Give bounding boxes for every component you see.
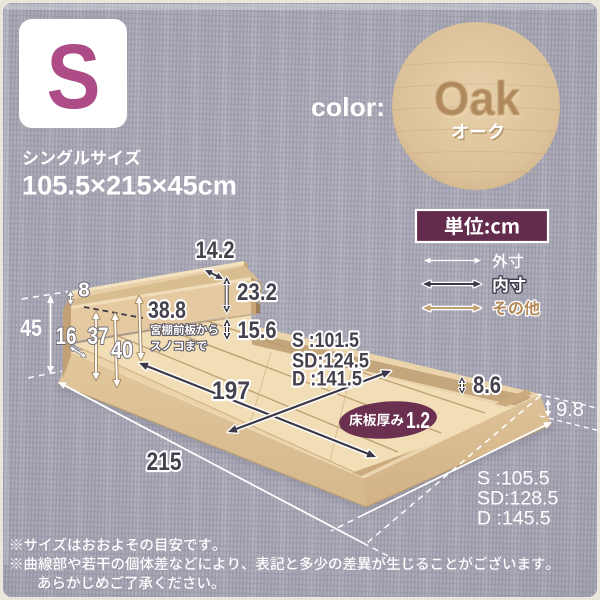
svg-text:197: 197: [212, 377, 250, 405]
svg-text:40: 40: [111, 337, 133, 364]
svg-text:15.6: 15.6: [238, 317, 277, 344]
svg-text:105.5×215×45cm: 105.5×215×45cm: [22, 171, 237, 201]
svg-text:Oak: Oak: [434, 73, 520, 126]
svg-text:8.6: 8.6: [473, 372, 501, 399]
svg-text:45: 45: [20, 315, 42, 342]
svg-text:color:: color:: [311, 92, 385, 122]
svg-text:37: 37: [88, 323, 109, 350]
svg-text:D :141.5: D :141.5: [292, 368, 362, 391]
svg-text:SD:128.5: SD:128.5: [477, 488, 558, 510]
svg-text:215: 215: [147, 448, 182, 476]
svg-text:38.8: 38.8: [148, 297, 186, 324]
svg-text:9.8: 9.8: [556, 399, 584, 421]
svg-text:1.2: 1.2: [406, 407, 430, 433]
svg-text:S: S: [47, 26, 101, 128]
svg-text:23.2: 23.2: [237, 279, 277, 306]
svg-text:14.2: 14.2: [196, 237, 235, 264]
svg-text:16: 16: [56, 323, 77, 350]
svg-text:S :105.5: S :105.5: [477, 468, 550, 490]
svg-text:8: 8: [78, 279, 89, 302]
svg-text:D :145.5: D :145.5: [477, 508, 551, 530]
